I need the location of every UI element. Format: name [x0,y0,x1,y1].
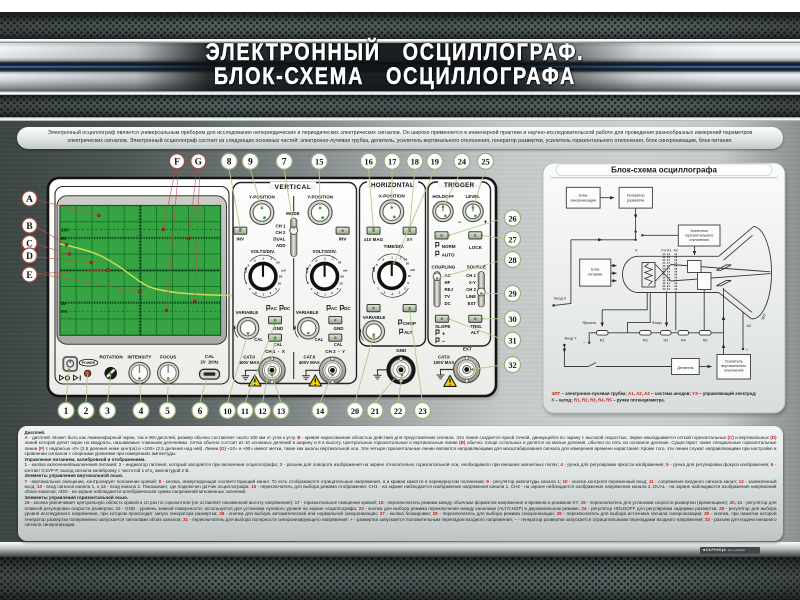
svg-text:отклонения: отклонения [724,368,744,372]
svg-text:23: 23 [418,407,426,416]
svg-text:SLOPE: SLOPE [435,324,450,329]
svg-text:INV: INV [237,237,245,242]
svg-text:GND: GND [396,348,407,353]
svg-text:10: 10 [61,301,67,306]
svg-text:+: + [746,348,748,352]
svg-text:Вход X: Вход X [554,297,566,301]
svg-text:GND: GND [273,326,284,331]
svg-text:7: 7 [282,158,287,168]
svg-text:вертикального: вертикального [721,364,746,368]
svg-text:ROTATION: ROTATION [99,355,123,360]
svg-text:10: 10 [408,274,412,278]
svg-text:COUPLING: COUPLING [432,264,456,269]
svg-text:Фокус: Фокус [652,321,662,325]
svg-text:V: V [306,270,308,274]
svg-text:29: 29 [508,290,516,299]
svg-text:R1: R1 [600,339,605,343]
svg-text:питания: питания [588,273,602,277]
svg-text:УЭ-А1: УЭ-А1 [661,249,672,253]
svg-text:ЭЛТ – электронно-лучевая трубк: ЭЛТ – электронно-лучевая трубка; А1, А2,… [552,391,758,396]
svg-text:21: 21 [371,407,379,416]
svg-text:A: A [26,195,33,205]
svg-text:AC: AC [331,306,338,311]
svg-text:19: 19 [431,158,439,167]
svg-text:mV: mV [343,268,348,272]
svg-text:VARIABLE: VARIABLE [236,310,259,315]
svg-text:HOLDOFF: HOLDOFF [432,194,454,199]
svg-text:.5: .5 [247,264,250,268]
svg-text:.2: .2 [382,257,385,261]
svg-text:CAT.II: CAT.II [243,354,255,359]
svg-text:100V MAX: 100V MAX [433,360,454,365]
svg-text:А2: А2 [674,249,679,253]
svg-text:LEVEL: LEVEL [466,194,481,199]
svg-text:развертки: развертки [627,198,644,202]
svg-text:D: D [26,252,33,262]
svg-text:−: − [442,339,445,345]
svg-text:GND: GND [334,326,345,331]
svg-text:−: − [458,220,462,226]
svg-text:30: 30 [508,315,516,324]
svg-text:I: I [79,376,81,383]
svg-text:INV: INV [339,237,347,242]
svg-text:CAL: CAL [205,354,215,359]
svg-text:CAT.II: CAT.II [303,354,315,359]
svg-text:26: 26 [508,214,516,223]
svg-text:.1: .1 [399,255,402,259]
svg-text:400V MAX: 400V MAX [299,360,320,365]
svg-text:50: 50 [404,257,408,261]
svg-text:CH 1: CH 1 [275,223,286,228]
svg-text:VARIABLE: VARIABLE [296,310,319,315]
svg-text:6: 6 [198,407,203,417]
svg-text:24: 24 [458,158,467,167]
svg-text:CAL: CAL [315,337,324,342]
svg-text:1: 1 [64,407,69,417]
svg-text:CH 2: CH 2 [275,230,286,235]
svg-text:9: 9 [248,158,253,168]
svg-text:NORM: NORM [442,244,456,249]
svg-text:.1: .1 [398,291,401,295]
svg-text:E: E [26,271,32,281]
svg-text:2V 1KHz: 2V 1KHz [201,360,219,365]
svg-text:Блок: Блок [579,193,588,197]
svg-text:11: 11 [241,407,249,416]
svg-text:REJ: REJ [445,287,454,292]
svg-text:50: 50 [276,261,280,265]
svg-text:DUAL: DUAL [273,236,286,241]
svg-text:CAL: CAL [254,337,263,342]
svg-text:VARIABLE: VARIABLE [363,315,386,320]
svg-text:17: 17 [388,158,396,167]
svg-text:27: 27 [508,235,516,244]
svg-text:Блок: Блок [591,268,600,272]
svg-text:EXT: EXT [468,301,477,306]
svg-text:DC: DC [344,306,351,311]
svg-text:mV: mV [281,268,286,272]
svg-text:5: 5 [165,407,170,417]
svg-text:Генератор: Генератор [627,193,645,197]
svg-text:CH 1 - X: CH 1 - X [265,349,285,354]
svg-text:VOLTS/DIV.: VOLTS/DIV. [312,249,336,254]
svg-text:10: 10 [223,407,231,416]
svg-text:К – катод; R1, R2, R3, R4, R5: К – катод; R1, R2, R3, R4, R5 – ручки по… [552,397,665,402]
svg-text:CH 1: CH 1 [466,273,476,278]
svg-text:V: V [245,270,247,274]
svg-text:DC: DC [284,306,291,311]
svg-text:90: 90 [61,236,67,241]
svg-text:25: 25 [481,158,489,167]
svg-text:ALT: ALT [404,330,413,335]
svg-text:.5: .5 [383,291,386,295]
svg-text:32: 32 [508,361,516,370]
svg-text:Вход Y: Вход Y [565,336,577,340]
svg-text:8: 8 [227,158,232,168]
svg-text:LOCK: LOCK [469,245,483,250]
svg-text:.2: .2 [315,258,318,262]
svg-text:16: 16 [364,158,372,167]
svg-text:R2: R2 [643,339,648,343]
svg-text:DC: DC [445,301,451,306]
svg-text:X-Y: X-Y [469,280,476,285]
svg-text:Блок-схема осциллографа: Блок-схема осциллографа [611,165,717,174]
svg-text:А3: А3 [747,324,752,328]
svg-text:CAT.II: CAT.II [438,354,450,359]
svg-text:22: 22 [394,407,402,416]
svg-text:F: F [174,158,180,168]
svg-text:EXT: EXT [463,347,472,352]
svg-text:Y-POSITION: Y-POSITION [249,195,275,200]
svg-text:AC: AC [271,306,278,311]
svg-text:28: 28 [508,256,516,265]
svg-text:−: − [583,341,585,345]
svg-text:100: 100 [61,228,69,233]
svg-text:14: 14 [316,407,325,416]
svg-text:MODE: MODE [286,211,300,216]
svg-text:ADD: ADD [276,243,286,248]
svg-text:INTENSITY: INTENSITY [128,355,152,360]
svg-text:31: 31 [508,337,516,346]
svg-text:x10 MAG: x10 MAG [364,237,384,242]
svg-text:0%: 0% [61,309,68,314]
svg-text:CH 2 - Y: CH 2 - Y [325,349,345,354]
svg-text:FOCUS: FOCUS [160,355,176,360]
svg-text:VERTICAL: VERTICAL [275,184,312,191]
svg-text:mS: mS [410,268,415,272]
svg-text:2: 2 [84,407,89,417]
svg-text:20: 20 [406,261,410,265]
svg-text:синхронизации: синхронизации [570,198,596,202]
svg-text:LINE: LINE [466,294,476,299]
svg-text:.1: .1 [390,255,393,259]
svg-text:R4: R4 [681,339,686,343]
svg-text:.1: .1 [270,256,273,260]
svg-text:CAL: CAL [334,342,343,347]
svg-text:XY: XY [407,237,413,242]
svg-text:13: 13 [277,407,285,416]
svg-text:POWER: POWER [82,361,96,365]
svg-text:50: 50 [338,261,342,265]
svg-text:HORIZONTAL: HORIZONTAL [371,182,414,189]
svg-text:HF: HF [445,280,451,285]
svg-text:.5: .5 [308,264,311,268]
svg-text:+: + [442,332,445,338]
svg-text:.1: .1 [331,256,334,260]
svg-text:.5: .5 [375,263,378,267]
svg-text:Усилитель: Усилитель [690,229,708,233]
svg-text:15: 15 [315,158,323,167]
svg-text:отклонения: отклонения [689,238,709,242]
svg-text:TV: TV [445,294,451,299]
svg-text:.1: .1 [262,256,265,260]
svg-text:.2: .2 [391,292,394,296]
svg-text:R3: R3 [663,339,668,343]
svg-text:20: 20 [341,275,345,279]
svg-text:B: B [26,222,32,232]
svg-text:20: 20 [279,275,283,279]
svg-text:TRIGGER: TRIGGER [444,182,475,189]
svg-text:18: 18 [411,158,419,167]
svg-text:R5: R5 [703,339,708,343]
svg-text:10: 10 [278,281,282,285]
svg-text:CH 2: CH 2 [466,287,476,292]
svg-text:.1: .1 [323,256,326,260]
svg-text:Делитель: Делитель [677,366,693,370]
svg-text:400V MAX: 400V MAX [239,360,260,365]
svg-text:12: 12 [258,407,266,416]
svg-text:10: 10 [339,281,343,285]
svg-text:.2: .2 [253,258,256,262]
svg-text:AUTO: AUTO [442,252,455,257]
svg-text:4: 4 [139,407,144,417]
svg-text:Усилитель: Усилитель [725,359,743,363]
svg-text:горизонтального: горизонтального [685,233,713,237]
svg-text:G: G [195,158,203,168]
svg-text:Яркость: Яркость [582,321,596,325]
svg-text:20: 20 [351,407,359,416]
svg-text:3: 3 [105,407,110,417]
svg-text:VOLTS/DIV.: VOLTS/DIV. [251,249,275,254]
svg-text:CHOP: CHOP [403,321,416,326]
